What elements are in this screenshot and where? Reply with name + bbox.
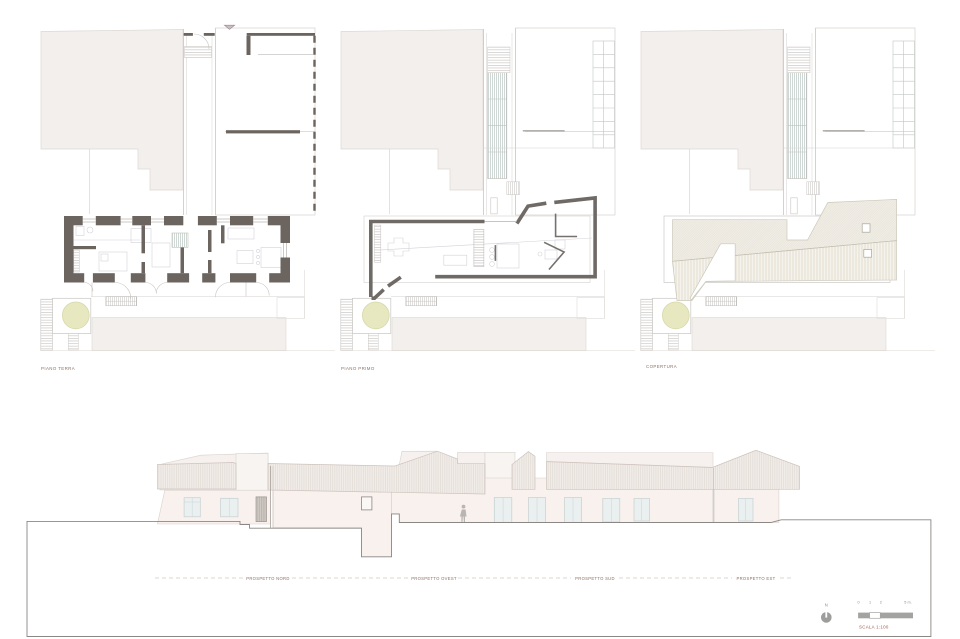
svg-text:0: 0: [857, 601, 859, 605]
svg-text:COPERTURA: COPERTURA: [646, 364, 677, 369]
svg-text:1: 1: [869, 601, 871, 605]
svg-text:PIANO TERRA: PIANO TERRA: [41, 366, 75, 371]
svg-text:SCALA 1:100: SCALA 1:100: [859, 625, 889, 630]
svg-text:PIANO PRIMO: PIANO PRIMO: [341, 366, 375, 371]
svg-text:PROSPETTO SUD: PROSPETTO SUD: [575, 576, 615, 581]
svg-text:N: N: [825, 603, 828, 608]
svg-text:PROSPETTO OVEST: PROSPETTO OVEST: [411, 576, 457, 581]
svg-text:2: 2: [880, 601, 882, 605]
svg-text:PROSPETTO EST: PROSPETTO EST: [737, 576, 776, 581]
svg-text:PROSPETTO NORD: PROSPETTO NORD: [246, 576, 289, 581]
svg-text:5 m.: 5 m.: [904, 601, 911, 605]
